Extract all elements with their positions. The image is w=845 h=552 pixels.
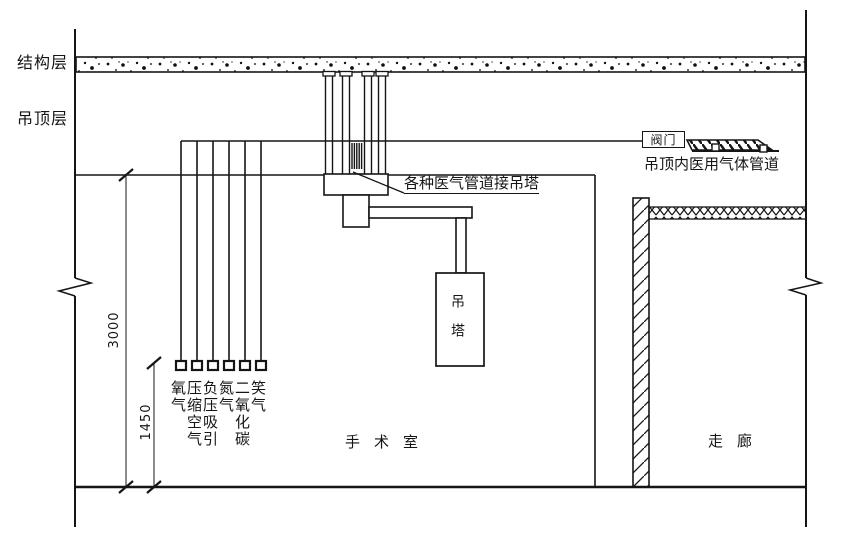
gas-pipe-bundle [352, 143, 362, 169]
pendant-label: 吊塔 [447, 294, 467, 352]
pendant-ceiling-plate [324, 174, 388, 195]
drawing-linework [0, 0, 845, 552]
corridor-label: 走廊 [708, 434, 766, 449]
structural-layer-label: 结构层 [17, 55, 68, 71]
gas-outlet-terminals [176, 361, 266, 370]
pipes-to-pendant-annotation: 各种医气管道接吊塔 [404, 176, 539, 194]
gas-drop-pipes [181, 141, 261, 361]
corridor-ceiling [649, 207, 806, 219]
right-wall-break-mark [790, 278, 821, 295]
ceiling-gas-pipe-section [687, 140, 779, 152]
right-wall-line [790, 10, 821, 527]
dimension-3000-text: 3000 [107, 309, 123, 351]
pendant-arm [369, 207, 472, 218]
ceiling-gas-pipeline-annotation: 吊顶内医用气体管道 [644, 157, 779, 172]
partition-wall [633, 198, 649, 487]
pipe-support-right [760, 145, 767, 152]
pendant-drop-rod [456, 218, 466, 273]
dimension-1450-text: 1450 [139, 401, 155, 443]
operating-room-label: 手术室 [345, 435, 432, 450]
pipe-support-left [712, 144, 719, 151]
valve-symbol: 阀门 [642, 131, 685, 148]
left-wall-line [59, 29, 91, 527]
valve-label: 阀门 [650, 131, 676, 148]
ceiling-layer-label: 吊顶层 [17, 111, 68, 127]
hanger-rods [323, 72, 388, 175]
pendant-column [343, 195, 369, 227]
medical-gas-section-drawing: 结构层 吊顶层 各种医气管道接吊塔 阀门 吊顶内医用气体管道 吊塔 手术室 走廊… [0, 0, 845, 552]
gas-label-nitrous-oxide: 笑气 [252, 380, 269, 414]
left-wall-break-mark [59, 278, 91, 296]
structural-slab [76, 57, 805, 72]
